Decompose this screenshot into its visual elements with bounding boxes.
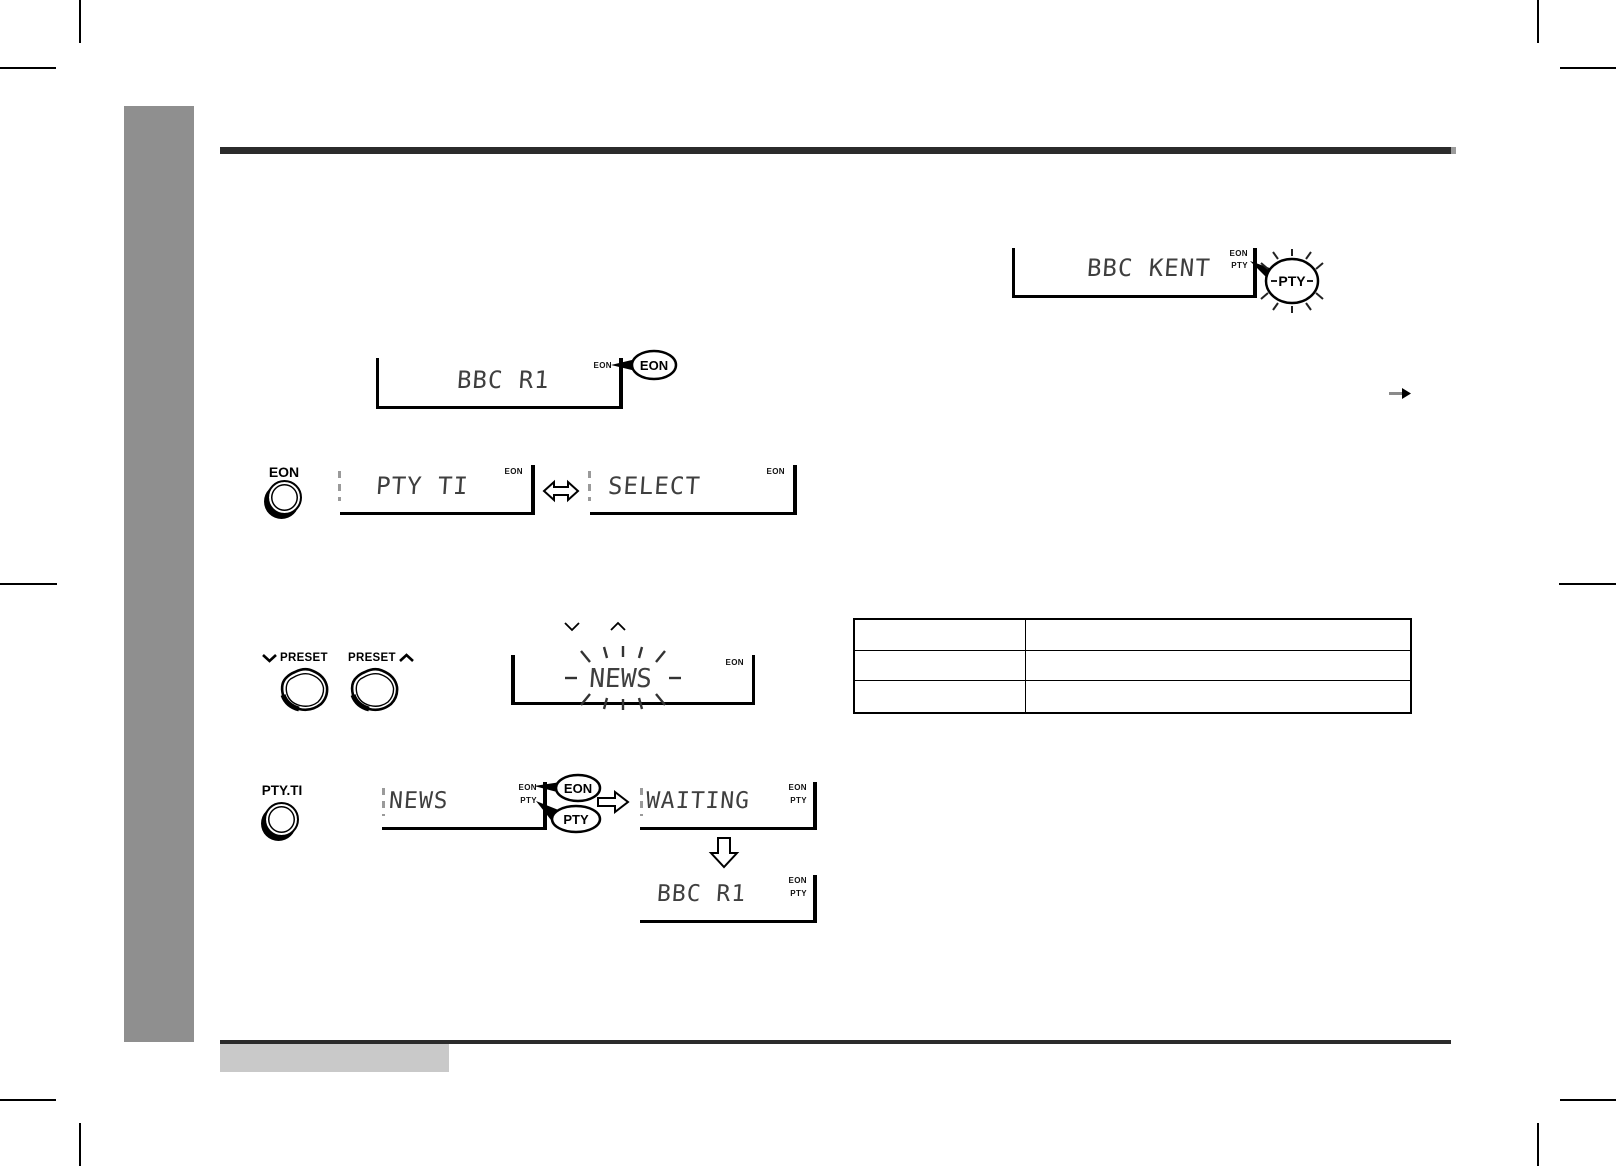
- chevron-down-icon: [564, 621, 580, 632]
- down-arrow-icon: [707, 836, 741, 870]
- fold-mark-left: [0, 583, 57, 585]
- eon-indicator: EON: [766, 468, 785, 476]
- crop-mark-bottom-left-h: [0, 1099, 56, 1101]
- lcd-display-bbc-kent: BBC KENT EON PTY: [1012, 248, 1257, 298]
- lcd-display-bbc-r1-bottom: BBC R1 EON PTY: [640, 875, 817, 923]
- eon-balloon-top: EON: [610, 348, 678, 382]
- table-cell: [1026, 620, 1410, 651]
- table-cell: [1026, 651, 1410, 682]
- chevron-down-icon: [262, 653, 277, 663]
- crop-mark-top-left-h: [0, 67, 56, 69]
- crop-mark-bottom-left-v: [79, 1123, 81, 1166]
- header-rule-cap: [1451, 147, 1456, 154]
- crop-mark-bottom-right-v: [1537, 1123, 1539, 1166]
- lcd-display-select: SELECT EON: [590, 465, 797, 515]
- preset-down-text: PRESET: [280, 652, 328, 664]
- lcd-edge-ghost: [382, 788, 385, 816]
- chapter-sidebar-bar: [124, 106, 194, 1042]
- table-cell: [855, 651, 1026, 682]
- chevron-up-icon: [399, 653, 414, 663]
- eon-button-label: EON: [260, 464, 308, 480]
- table-cell: [1026, 681, 1410, 712]
- preset-up-label: PRESET: [348, 652, 414, 664]
- lcd-text: BBC R1: [656, 883, 747, 906]
- lcd-text: SELECT: [607, 474, 701, 498]
- eon-indicator: EON: [788, 784, 807, 792]
- double-arrow-icon: [542, 478, 580, 504]
- eon-indicator: EON: [1229, 250, 1248, 258]
- pty-balloon-row4: PTY: [529, 798, 603, 836]
- lcd-display-bbc-r1-top: BBC R1 EON: [376, 358, 623, 409]
- pty-ti-button-label: PTY.TI: [256, 783, 308, 798]
- lcd-text: PTY TI: [375, 474, 469, 498]
- table-cell: [855, 620, 1026, 651]
- pty-balloon-label: PTY: [1278, 273, 1306, 289]
- pty-balloon-label: PTY: [563, 812, 589, 827]
- pty-indicator: PTY: [1231, 262, 1248, 270]
- pty-indicator: PTY: [790, 797, 807, 805]
- crop-mark-bottom-right-h: [1560, 1099, 1616, 1101]
- lcd-display-pty-ti: PTY TI EON: [340, 465, 535, 515]
- table-cell: [855, 681, 1026, 712]
- lcd-edge-ghost: [640, 788, 643, 816]
- crop-mark-top-right-v: [1537, 0, 1539, 43]
- footer-title-placeholder: [220, 1044, 449, 1072]
- eon-indicator: EON: [788, 877, 807, 885]
- preset-up-button: [344, 665, 402, 715]
- eon-balloon-label: EON: [564, 781, 592, 796]
- lcd-display-news: NEWS EON PTY: [382, 782, 547, 830]
- pty-flashing-balloon: PTY: [1248, 247, 1328, 315]
- manual-page: BBC KENT EON PTY PTY BBC R1 EON EO: [0, 0, 1616, 1166]
- lcd-text: WAITING: [645, 790, 751, 813]
- lcd-text: BBC R1: [456, 368, 550, 392]
- preset-down-label: PRESET: [262, 652, 328, 664]
- pty-indicator: PTY: [790, 890, 807, 898]
- crop-mark-top-left-v: [79, 0, 81, 43]
- pty-ti-button: [264, 802, 299, 837]
- eon-button: [267, 480, 302, 515]
- lcd-text: NEWS: [588, 664, 653, 694]
- fold-mark-right: [1559, 583, 1616, 585]
- lcd-display-waiting: WAITING EON PTY: [640, 782, 817, 830]
- goto-arrow-icon: [1388, 386, 1412, 401]
- lcd-text: BBC KENT: [1086, 256, 1211, 280]
- lcd-edge-ghost: [588, 471, 591, 501]
- flashing-news-text: NEWS: [548, 644, 698, 712]
- reference-table: [853, 618, 1412, 714]
- preset-down-button: [274, 665, 332, 715]
- chevron-up-icon: [610, 621, 626, 632]
- preset-up-text: PRESET: [348, 652, 396, 664]
- crop-mark-top-right-h: [1560, 67, 1616, 69]
- lcd-text: NEWS: [388, 790, 449, 813]
- next-arrow-icon: [596, 790, 630, 814]
- header-rule: [220, 147, 1451, 154]
- eon-indicator: EON: [504, 468, 523, 476]
- eon-balloon-label: EON: [640, 358, 668, 373]
- eon-indicator: EON: [725, 659, 744, 667]
- lcd-edge-ghost: [338, 471, 341, 501]
